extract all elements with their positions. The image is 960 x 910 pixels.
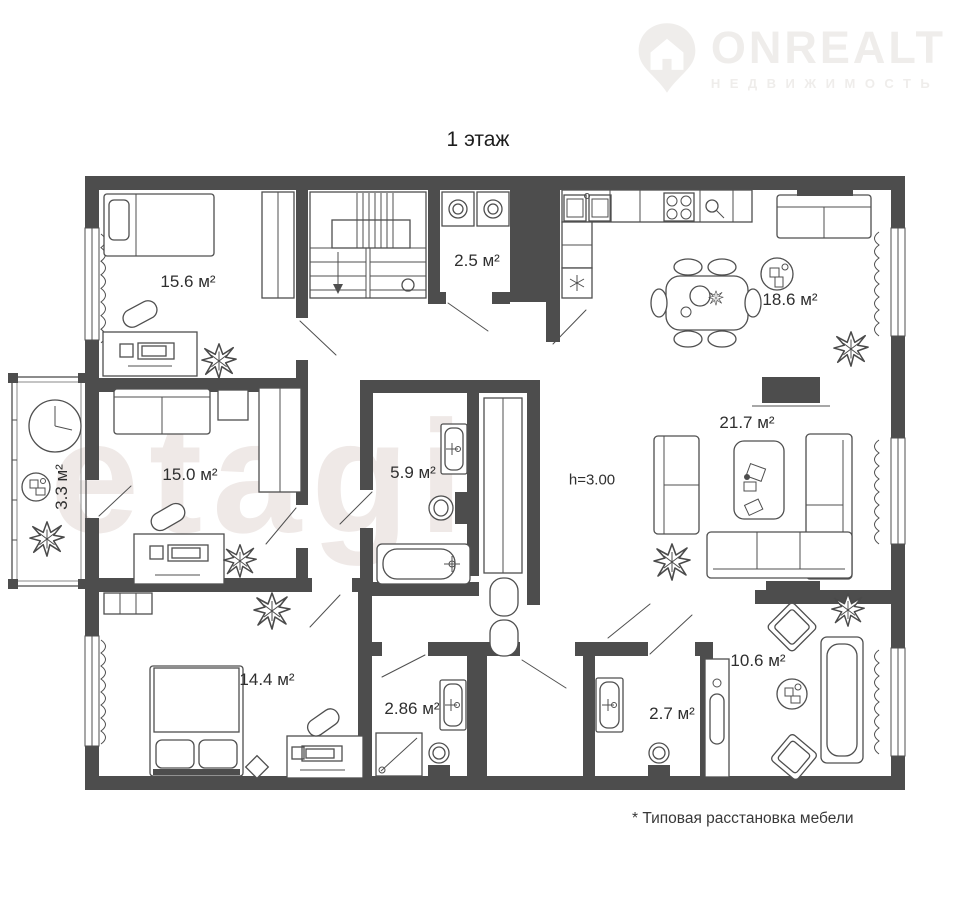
desk (287, 736, 363, 778)
toilet (429, 492, 467, 524)
sink (596, 678, 623, 732)
desk-chair (120, 298, 160, 331)
logo-brand: ONREALT (711, 25, 946, 70)
cushion-chair (767, 602, 818, 653)
tv (797, 190, 853, 196)
coffee-table (734, 441, 784, 519)
wardrobe (259, 388, 301, 492)
room-label-wc: 2.7 м² (649, 704, 695, 724)
logo-tagline: НЕДВИЖИМОСТЬ (711, 76, 939, 91)
kitchen-cabinet (562, 222, 592, 268)
bench (104, 593, 152, 614)
daybed (821, 637, 863, 763)
plant-icon (202, 344, 236, 378)
tv (766, 581, 820, 601)
stairs-down-arrow (333, 284, 343, 294)
toilet (428, 743, 450, 776)
bedroom-2-furniture (114, 388, 301, 584)
plant-icon (832, 594, 864, 626)
door-leaf (300, 321, 336, 355)
door-leaf (99, 486, 131, 516)
bistro-table (22, 473, 50, 501)
living-room-furniture (654, 377, 852, 601)
stool (246, 756, 269, 779)
ceiling-height-label: h=3.00 (569, 472, 615, 489)
plant-icon (254, 593, 290, 629)
side-table (761, 258, 793, 290)
room-label-bathroom: 5.9 м² (390, 463, 436, 483)
staircase (310, 192, 426, 298)
room-label-kitchen: 18.6 м² (762, 290, 817, 310)
side-table (218, 390, 248, 420)
room-label-sunroom: 10.6 м² (730, 651, 785, 671)
cushion-chair (770, 733, 818, 781)
toilet (648, 743, 670, 776)
balcony-structure (8, 373, 88, 589)
desk (134, 534, 224, 584)
sink (441, 424, 467, 474)
shower-room-fixtures (376, 680, 466, 776)
door-leaf (650, 615, 692, 654)
desk-chair (148, 500, 188, 534)
wall-clock (29, 400, 81, 452)
plant-icon (30, 522, 64, 556)
furniture-footnote: * Типовая расстановка мебели (632, 810, 854, 828)
stairs-post (402, 279, 414, 291)
room-label-bedroom-2: 15.0 м² (162, 465, 217, 485)
laundry-fixtures (442, 192, 509, 226)
window (891, 648, 905, 756)
fridge (562, 268, 592, 298)
window (891, 228, 905, 336)
closet-cabinet (484, 398, 522, 656)
sofa (777, 195, 871, 238)
wc-fixtures (596, 678, 670, 776)
onrealt-logo: ONREALT НЕДВИЖИМОСТЬ (635, 20, 946, 96)
room-label-living: 21.7 м² (719, 413, 774, 433)
desk-chair (304, 706, 342, 739)
shower-tray (376, 733, 422, 776)
door-leaf (522, 660, 566, 688)
loveseat (654, 436, 699, 534)
console-table (705, 659, 729, 777)
washing-machine (477, 192, 509, 226)
plant-icon (224, 545, 256, 577)
double-bed (150, 666, 243, 776)
bathroom-fixtures (377, 398, 522, 656)
room-label-shower: 2.86 м² (384, 699, 439, 719)
plant-icon (834, 332, 868, 366)
onrealt-logo-text: ONREALT НЕДВИЖИМОСТЬ (711, 25, 946, 91)
radiator (875, 440, 880, 544)
radiator (101, 640, 106, 744)
onrealt-logo-pin-icon (635, 20, 699, 96)
side-table (777, 679, 807, 709)
door-leaf (382, 655, 425, 677)
radiator (875, 650, 880, 754)
window (85, 228, 99, 340)
sofa (114, 389, 210, 434)
room-label-laundry: 2.5 м² (454, 251, 500, 271)
bathtub (377, 544, 470, 584)
room-label-balcony: 3.3 м² (52, 464, 72, 510)
desk (103, 332, 197, 376)
tv (752, 377, 830, 406)
washing-machine (442, 192, 474, 226)
door-leaf (448, 303, 488, 331)
dining-table (666, 276, 748, 330)
sunroom-furniture (705, 594, 864, 781)
door-leaf (266, 508, 296, 544)
door-leaf (608, 604, 650, 638)
window (891, 438, 905, 544)
sink (440, 680, 466, 730)
room-label-bedroom-3: 14.4 м² (239, 670, 294, 690)
radiator (875, 232, 880, 336)
floor-title: 1 этаж (447, 128, 510, 152)
plant-icon (654, 544, 690, 580)
window (85, 636, 99, 746)
room-label-bedroom-1: 15.6 м² (160, 272, 215, 292)
door-leaf (340, 492, 372, 524)
door-leaf (310, 595, 340, 627)
bedroom-3-furniture (104, 593, 363, 778)
bed (104, 194, 214, 256)
floor-plan-canvas: etagi ONREALT НЕДВИЖИМОСТЬ 1 этаж (0, 0, 960, 910)
wardrobe (262, 192, 294, 298)
kitchen-furniture (562, 190, 871, 366)
